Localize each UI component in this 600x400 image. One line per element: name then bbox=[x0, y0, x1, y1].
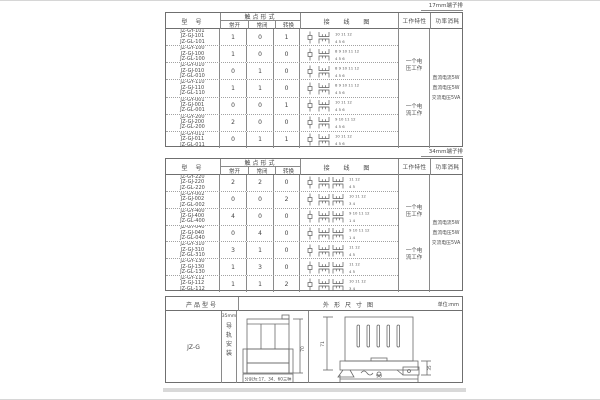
terminal-label-34mm: 34mm端子排 bbox=[421, 149, 463, 157]
power-note: 直流电流5W bbox=[433, 221, 460, 226]
spec-row: JZ-GY-100JZ-GJ-100JZ-GL-1001008 9 10 11 … bbox=[166, 45, 398, 62]
no-count: 0 bbox=[220, 192, 247, 208]
header-changeover: 转换 bbox=[275, 21, 301, 29]
model-cell: JZ-GY-002JZ-GJ-002JZ-GL-002 bbox=[166, 192, 220, 208]
nc-count: 2 bbox=[247, 175, 274, 191]
model-cell: JZ-GY-110JZ-GJ-110JZ-GL-110 bbox=[166, 80, 220, 96]
terminal-numbers-bottom: 4 5 6 bbox=[335, 56, 345, 61]
header-contact-label: 触点形式 bbox=[221, 159, 300, 167]
spec-row: JZ-GY-011JZ-GJ-011JZ-GL-01101110 11 124 … bbox=[166, 131, 398, 148]
spec-row: JZ-GY-040JZ-GJ-040JZ-GL-0400409 10 11 12… bbox=[166, 225, 398, 242]
spec-table-34mm: 型 号 触点形式 常开 常闭 转换 接 线 图 工作特性 功率消耗 JZ-GY-… bbox=[165, 158, 463, 291]
model-number: JZ-GL-011 bbox=[180, 143, 205, 148]
terminal-numbers-bottom: 4 5 6 bbox=[335, 39, 345, 44]
co-count: 0 bbox=[274, 242, 300, 258]
model-number: JZ-GL-112 bbox=[180, 287, 205, 292]
header-model: 型 号 bbox=[166, 159, 220, 175]
wiring-diagram: 8 9 10 11 124 5 6 bbox=[300, 46, 398, 62]
nc-count: 1 bbox=[247, 132, 274, 148]
co-count: 0 bbox=[274, 115, 300, 131]
spec-row: JZ-GY-112JZ-GJ-112JZ-GL-11211210 11 123 … bbox=[166, 275, 398, 292]
nc-count: 1 bbox=[247, 80, 274, 96]
co-count: 0 bbox=[274, 80, 300, 96]
co-count: 0 bbox=[274, 63, 300, 79]
model-cell: JZ-GY-130JZ-GJ-130JZ-GL-130 bbox=[166, 259, 220, 275]
model-cell: JZ-GY-200JZ-GJ-200JZ-GL-200 bbox=[166, 115, 220, 131]
terminal-numbers-bottom: 3 4 bbox=[349, 201, 356, 206]
no-count: 1 bbox=[220, 276, 247, 292]
spec-rows: JZ-GY-220JZ-GJ-220JZ-GL-22022011 124 5JZ… bbox=[166, 175, 398, 292]
co-count: 2 bbox=[274, 276, 300, 292]
wiring-diagram: 10 11 123 4 bbox=[300, 192, 398, 208]
header-power-consumption: 功率消耗 bbox=[430, 13, 464, 29]
mounting-note-cell: 35mm 导轨安装 bbox=[221, 311, 236, 383]
terminal-numbers-top: 10 11 12 bbox=[349, 278, 366, 283]
wiring-diagram: 10 11 124 5 6 bbox=[300, 132, 398, 148]
terminal-numbers-bottom: 4 5 6 bbox=[335, 107, 345, 112]
wiring-diagram-svg: 10 11 123 4 bbox=[302, 192, 398, 207]
wiring-diagram-svg: 10 11 123 4 bbox=[302, 277, 398, 292]
terminal-numbers-top: 10 11 12 bbox=[349, 194, 366, 199]
terminal-numbers-top: 10 11 12 bbox=[335, 31, 352, 36]
model-cell: JZ-GY-310JZ-GJ-310JZ-GL-310 bbox=[166, 242, 220, 258]
terminal-numbers-bottom: 1 4 bbox=[349, 235, 356, 240]
header-power-consumption: 功率消耗 bbox=[430, 159, 464, 175]
datasheet-page: 17mm端子排 型 号 触点形式 常开 常闭 转换 接 线 图 工作特性 功率消… bbox=[0, 0, 600, 400]
no-count: 0 bbox=[220, 132, 247, 148]
wiring-diagram-svg: 9 10 11 121 4 bbox=[302, 226, 398, 241]
side-height-dim: 71 bbox=[320, 341, 326, 347]
spec-row: JZ-GY-001JZ-GJ-001JZ-GL-00100110 11 124 … bbox=[166, 97, 398, 114]
header-normally-closed: 常闭 bbox=[248, 167, 275, 175]
terminal-numbers-bottom: 4 5 6 bbox=[335, 142, 345, 147]
no-count: 0 bbox=[220, 98, 247, 114]
wiring-diagram-svg: 9 10 11 124 5 6 bbox=[302, 115, 398, 130]
working-characteristic-cell: 一个电压工作一个电流工作 bbox=[398, 29, 429, 148]
spec-row: JZ-GY-200JZ-GJ-200JZ-GL-2002009 10 11 12… bbox=[166, 114, 398, 131]
nc-count: 4 bbox=[247, 226, 274, 242]
spec-row: JZ-GY-110JZ-GJ-110JZ-GL-1101108 9 10 11 … bbox=[166, 79, 398, 96]
header-product-model: 产品型号 bbox=[166, 297, 238, 311]
terminal-numbers-bottom: 4 5 bbox=[349, 269, 356, 274]
header-contact-form: 触点形式 常开 常闭 转换 bbox=[220, 13, 300, 29]
spec-row: JZ-GY-101JZ-GJ-101JZ-GL-10110110 11 124 … bbox=[166, 29, 398, 45]
terminal-numbers-top: 10 11 12 bbox=[335, 100, 352, 105]
no-count: 2 bbox=[220, 175, 247, 191]
dimension-table-header: 产品型号 外形尺寸图 单位:mm bbox=[166, 297, 462, 311]
side-view-drawing: 71 90 35 bbox=[309, 311, 463, 383]
terminal-numbers-bottom: 4 5 bbox=[349, 185, 356, 190]
terminal-numbers-bottom: 4 5 6 bbox=[335, 124, 345, 129]
dimension-table: 产品型号 外形尺寸图 单位:mm JZ-G 35mm 导轨安装 bbox=[165, 296, 463, 383]
terminal-numbers-top: 10 11 12 bbox=[335, 134, 352, 139]
working-characteristic-cell: 一个电压工作一个电流工作 bbox=[398, 175, 429, 292]
rail-mount-label: 导轨安装 bbox=[225, 322, 233, 358]
front-view-drawing: 分别为:17、34、60三种 70 bbox=[237, 311, 309, 383]
model-cell: JZ-GY-040JZ-GJ-040JZ-GL-040 bbox=[166, 226, 220, 242]
terminal-numbers-top: 9 10 11 12 bbox=[349, 211, 370, 216]
nc-count: 0 bbox=[247, 192, 274, 208]
spec-row: JZ-GY-010JZ-GJ-010JZ-GL-0100108 9 10 11 … bbox=[166, 62, 398, 79]
wiring-diagram-svg: 8 9 10 11 124 5 6 bbox=[302, 64, 398, 79]
spec-rows: JZ-GY-101JZ-GJ-101JZ-GL-10110110 11 124 … bbox=[166, 29, 398, 148]
co-count: 1 bbox=[274, 98, 300, 114]
terminal-numbers-bottom: 1 4 bbox=[349, 218, 356, 223]
side-view-cell: 71 90 35 bbox=[308, 311, 462, 383]
nc-count: 0 bbox=[247, 98, 274, 114]
terminal-numbers-top: 11 12 bbox=[349, 177, 360, 182]
no-count: 1 bbox=[220, 259, 247, 275]
header-changeover: 转换 bbox=[275, 167, 301, 175]
wiring-diagram-svg: 8 9 10 11 124 5 6 bbox=[302, 81, 398, 96]
header-normally-open: 常开 bbox=[221, 21, 248, 29]
wiring-diagram: 10 11 124 5 6 bbox=[300, 29, 398, 45]
power-consumption-cell: 直流电流5W直流电压5W交流电压5VA bbox=[429, 29, 462, 148]
model-cell: JZ-GY-100JZ-GJ-100JZ-GL-100 bbox=[166, 46, 220, 62]
header-working-characteristic: 工作特性 bbox=[398, 13, 430, 29]
model-cell: JZ-GY-011JZ-GJ-011JZ-GL-011 bbox=[166, 132, 220, 148]
co-count: 2 bbox=[274, 192, 300, 208]
wiring-diagram-svg: 9 10 11 121 4 bbox=[302, 209, 398, 224]
terminal-numbers-top: 11 12 bbox=[349, 244, 360, 249]
no-count: 1 bbox=[220, 29, 247, 45]
spec-row: JZ-GY-002JZ-GJ-002JZ-GL-00200210 11 123 … bbox=[166, 191, 398, 208]
terminal-numbers-top: 9 10 11 12 bbox=[335, 117, 356, 122]
spec-row: JZ-GY-400JZ-GJ-400JZ-GL-4004009 10 11 12… bbox=[166, 208, 398, 225]
power-note: 直流电流5W bbox=[433, 76, 460, 81]
wiring-diagram: 10 11 123 4 bbox=[300, 276, 398, 292]
no-count: 0 bbox=[220, 226, 247, 242]
work-note: 一个电压工作 bbox=[404, 59, 424, 73]
terminal-numbers-top: 8 9 10 11 12 bbox=[335, 65, 360, 70]
no-count: 3 bbox=[220, 242, 247, 258]
wiring-diagram: 9 10 11 121 4 bbox=[300, 209, 398, 225]
header-wiring-diagram: 接 线 图 bbox=[300, 159, 398, 175]
header-working-characteristic: 工作特性 bbox=[398, 159, 430, 175]
header-model: 型 号 bbox=[166, 13, 220, 29]
work-note: 一个电流工作 bbox=[404, 104, 424, 118]
unit-label: 单位:mm bbox=[438, 297, 459, 311]
model-cell: JZ-GY-220JZ-GJ-220JZ-GL-220 bbox=[166, 175, 220, 191]
model-cell: JZ-GY-001JZ-GJ-001JZ-GL-001 bbox=[166, 98, 220, 114]
front-view-cell: 分别为:17、34、60三种 70 bbox=[236, 311, 308, 383]
no-count: 2 bbox=[220, 115, 247, 131]
power-note: 直流电压5W bbox=[433, 86, 460, 91]
nc-count: 0 bbox=[247, 46, 274, 62]
wiring-diagram: 11 124 5 bbox=[300, 242, 398, 258]
wiring-diagram-svg: 10 11 124 5 6 bbox=[302, 30, 398, 45]
header-normally-closed: 常闭 bbox=[248, 21, 275, 29]
spec-row: JZ-GY-220JZ-GJ-220JZ-GL-22022011 124 5 bbox=[166, 175, 398, 191]
wiring-diagram: 8 9 10 11 124 5 6 bbox=[300, 63, 398, 79]
rail-size-label: 35mm bbox=[222, 314, 237, 320]
co-count: 0 bbox=[274, 46, 300, 62]
model-cell: JZ-GY-101JZ-GJ-101JZ-GL-101 bbox=[166, 29, 220, 45]
header-contact-label: 触点形式 bbox=[221, 13, 300, 21]
work-note: 一个电压工作 bbox=[404, 205, 424, 219]
header-wiring-diagram: 接 线 图 bbox=[300, 13, 398, 29]
wiring-diagram: 11 124 5 bbox=[300, 259, 398, 275]
co-count: 0 bbox=[274, 175, 300, 191]
nc-count: 0 bbox=[247, 29, 274, 45]
nc-count: 0 bbox=[247, 115, 274, 131]
nc-count: 1 bbox=[247, 276, 274, 292]
wiring-diagram-svg: 11 124 5 bbox=[302, 175, 398, 190]
model-cell: JZ-GY-400JZ-GJ-400JZ-GL-400 bbox=[166, 209, 220, 225]
wiring-diagram: 11 124 5 bbox=[300, 175, 398, 191]
no-count: 1 bbox=[220, 46, 247, 62]
wiring-diagram: 9 10 11 121 4 bbox=[300, 226, 398, 242]
page-shadow-line bbox=[163, 388, 466, 392]
spec-table-header: 型 号 触点形式 常开 常闭 转换 接 线 图 工作特性 功率消耗 bbox=[166, 13, 462, 29]
terminal-numbers-bottom: 4 5 6 bbox=[335, 73, 345, 78]
wiring-diagram: 10 11 124 5 6 bbox=[300, 98, 398, 114]
terminal-numbers-top: 8 9 10 11 12 bbox=[335, 82, 360, 87]
power-note: 交流电压5VA bbox=[432, 241, 461, 246]
front-note: 分别为:17、34、60三种 bbox=[245, 376, 292, 383]
power-note: 直流电压5W bbox=[433, 231, 460, 236]
wiring-diagram-svg: 11 124 5 bbox=[302, 243, 398, 258]
side-width-dim: 90 bbox=[376, 374, 382, 380]
co-count: 0 bbox=[274, 226, 300, 242]
front-height-dim: 70 bbox=[300, 346, 306, 352]
co-count: 0 bbox=[274, 259, 300, 275]
model-cell: JZ-GY-010JZ-GJ-010JZ-GL-010 bbox=[166, 63, 220, 79]
terminal-numbers-bottom: 4 5 6 bbox=[335, 90, 345, 95]
header-normally-open: 常开 bbox=[221, 167, 248, 175]
co-count: 0 bbox=[274, 209, 300, 225]
spec-row: JZ-GY-130JZ-GJ-130JZ-GL-13013011 124 5 bbox=[166, 258, 398, 275]
page-top-edge bbox=[0, 0, 600, 1]
terminal-numbers-top: 11 12 bbox=[349, 261, 360, 266]
power-note: 交流电压5VA bbox=[432, 96, 461, 101]
nc-count: 3 bbox=[247, 259, 274, 275]
no-count: 1 bbox=[220, 80, 247, 96]
nc-count: 0 bbox=[247, 209, 274, 225]
rail-width-dim: 35 bbox=[427, 365, 432, 371]
no-count: 0 bbox=[220, 63, 247, 79]
spec-table-header: 型 号 触点形式 常开 常闭 转换 接 线 图 工作特性 功率消耗 bbox=[166, 159, 462, 175]
terminal-numbers-top: 9 10 11 12 bbox=[349, 228, 370, 233]
wiring-diagram-svg: 11 124 5 bbox=[302, 260, 398, 275]
wiring-diagram-svg: 10 11 124 5 6 bbox=[302, 132, 398, 147]
wiring-diagram-svg: 8 9 10 11 124 5 6 bbox=[302, 47, 398, 62]
header-contact-form: 触点形式 常开 常闭 转换 bbox=[220, 159, 300, 175]
spec-table-17mm: 型 号 触点形式 常开 常闭 转换 接 线 图 工作特性 功率消耗 JZ-GY-… bbox=[165, 12, 463, 147]
nc-count: 1 bbox=[247, 242, 274, 258]
wiring-diagram: 9 10 11 124 5 6 bbox=[300, 115, 398, 131]
nc-count: 1 bbox=[247, 63, 274, 79]
wiring-diagram-svg: 10 11 124 5 6 bbox=[302, 98, 398, 113]
header-outline-drawing: 外形尺寸图 bbox=[238, 297, 462, 311]
work-note: 一个电流工作 bbox=[404, 248, 424, 262]
terminal-numbers-bottom: 3 4 bbox=[349, 286, 356, 291]
co-count: 1 bbox=[274, 29, 300, 45]
model-cell: JZ-GY-112JZ-GJ-112JZ-GL-112 bbox=[166, 276, 220, 292]
co-count: 1 bbox=[274, 132, 300, 148]
terminal-label-17mm: 17mm端子排 bbox=[421, 3, 463, 11]
product-model-value: JZ-G bbox=[166, 311, 221, 383]
terminal-numbers-top: 8 9 10 11 12 bbox=[335, 48, 360, 53]
no-count: 4 bbox=[220, 209, 247, 225]
wiring-diagram: 8 9 10 11 124 5 6 bbox=[300, 80, 398, 96]
terminal-numbers-bottom: 4 5 bbox=[349, 252, 356, 257]
spec-row: JZ-GY-310JZ-GJ-310JZ-GL-31031011 124 5 bbox=[166, 241, 398, 258]
power-consumption-cell: 直流电流5W直流电压5W交流电压5VA bbox=[429, 175, 462, 292]
